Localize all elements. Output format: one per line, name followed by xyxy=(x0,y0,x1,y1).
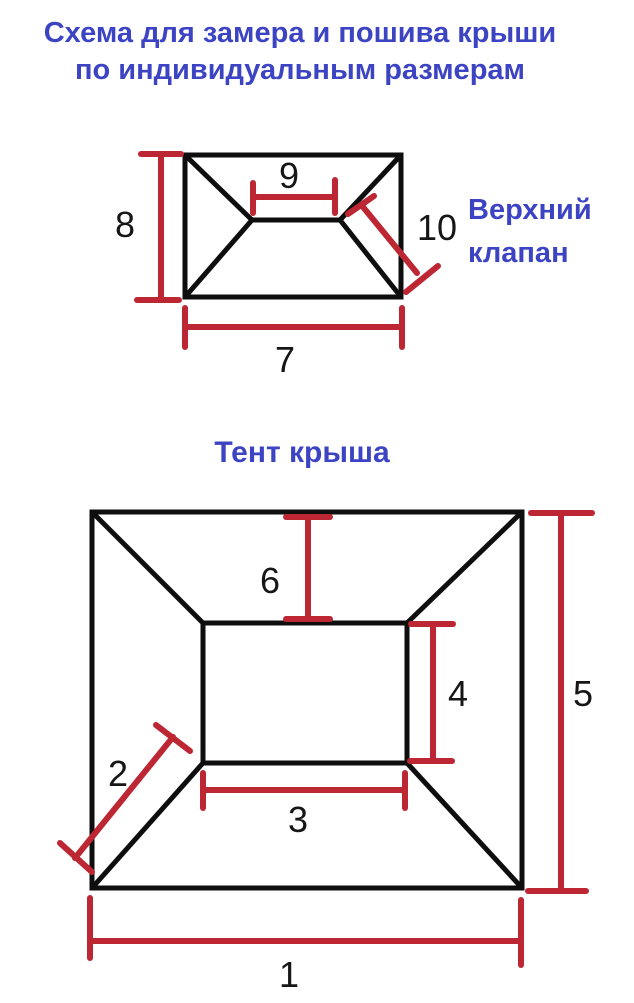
dim-4-label: 4 xyxy=(448,673,468,714)
dimension-6-top-slope: 6 xyxy=(260,517,330,619)
dim-5-label: 5 xyxy=(573,673,593,714)
diagram-canvas: 8 9 10 7 xyxy=(0,0,634,1003)
flap-diagonal-top-left xyxy=(185,155,252,220)
dimension-9-ridge: 9 xyxy=(253,155,335,213)
tent-inner-rectangle xyxy=(203,623,407,763)
dimension-5-outer-height: 5 xyxy=(528,513,593,891)
dimension-8-height: 8 xyxy=(115,154,181,300)
dimension-4-inner-height: 4 xyxy=(410,624,468,761)
dim-10-label: 10 xyxy=(417,207,457,248)
dim-3-label: 3 xyxy=(288,799,308,840)
page: Схема для замера и пошива крыши по индив… xyxy=(0,0,634,1003)
flap-diagonal-bottom-left xyxy=(185,220,252,297)
dim-7-label: 7 xyxy=(275,339,295,380)
dim-8-label: 8 xyxy=(115,204,135,245)
dim-6-label: 6 xyxy=(260,560,280,601)
dim-9-label: 9 xyxy=(279,155,299,196)
dimension-7-width: 7 xyxy=(185,308,402,380)
dim-1-label: 1 xyxy=(279,954,299,995)
dimension-1-outer-width: 1 xyxy=(90,898,521,995)
tent-diagonal-top-left xyxy=(92,512,203,623)
dim-2-label: 2 xyxy=(108,753,128,794)
dimension-3-inner-width: 3 xyxy=(203,773,405,840)
tent-diagonal-top-right xyxy=(407,512,522,623)
flap-diagonal-bottom-right xyxy=(340,220,401,297)
tent-diagonal-bottom-right xyxy=(407,763,522,888)
